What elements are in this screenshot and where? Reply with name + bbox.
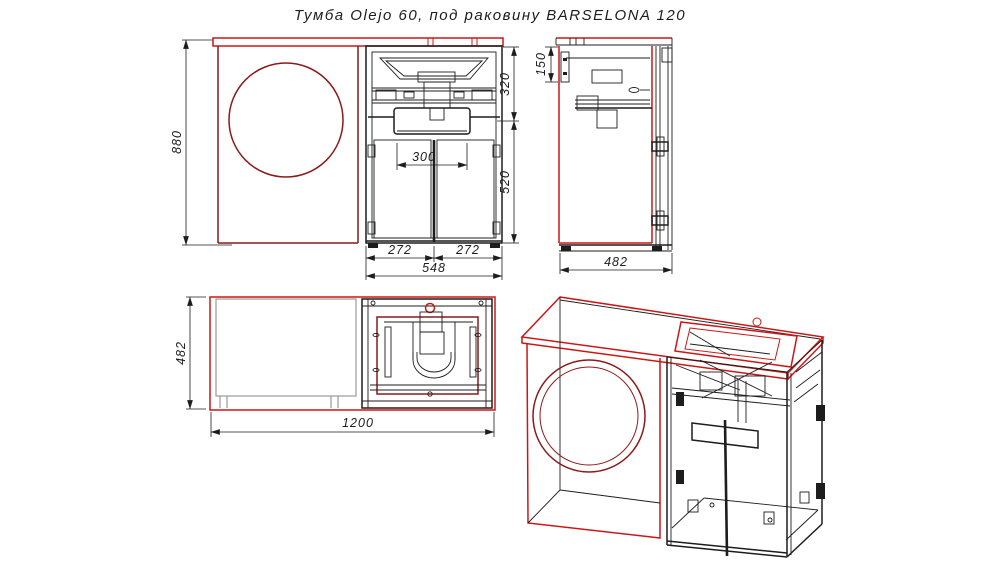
- washer-niche-front: [218, 46, 358, 243]
- tap-hole: [426, 304, 435, 313]
- drawing-sheet: Тумба Olejo 60, под раковину BARSELONA 1…: [0, 0, 1000, 564]
- sink-bowl-side: [592, 70, 622, 83]
- washer-panel-3d: [527, 297, 660, 538]
- drawing-title: Тумба Olejo 60, под раковину BARSELONA 1…: [294, 7, 686, 24]
- dim-label-520: 520: [498, 170, 512, 194]
- right-door: [437, 140, 494, 238]
- dim-label-300: 300: [412, 150, 436, 164]
- tap-hole-3d: [753, 318, 761, 326]
- washer-door-circle-3d: [533, 360, 645, 472]
- drawer-front: [394, 108, 470, 134]
- dim-bottom-row: 272 272 548: [366, 243, 502, 280]
- countertop-plan: [210, 297, 495, 410]
- front-elevation-view: 880: [170, 38, 519, 280]
- dim-plan-depth: 482: [174, 297, 206, 409]
- dim-total-height: 880: [170, 40, 232, 245]
- countertop-3d: [522, 297, 823, 379]
- countertop-side: [556, 38, 672, 45]
- side-internals: [566, 58, 652, 128]
- cabinet-front: [366, 46, 502, 248]
- dim-siphon-clearance: 300: [397, 143, 467, 170]
- siphon-side: [597, 110, 617, 128]
- dim-side-depth: 482: [560, 253, 672, 274]
- hinge-column: [652, 45, 672, 250]
- dim-label-272-right: 272: [455, 243, 480, 257]
- door-gap-3d: [725, 420, 727, 556]
- washer-plan: [216, 299, 356, 408]
- dim-label-272-left: 272: [387, 243, 412, 257]
- dim-label-320: 320: [498, 72, 512, 96]
- dim-apron: 150: [534, 47, 569, 82]
- countertop-front: [213, 38, 503, 46]
- siphon-front: [424, 82, 450, 108]
- side-bottom: [559, 245, 672, 251]
- sink-outline-plan: [377, 317, 478, 394]
- dim-label-150: 150: [534, 52, 548, 76]
- dim-total-width: 1200: [211, 412, 494, 437]
- dim-label-482-plan: 482: [174, 341, 188, 365]
- perspective-view: [522, 297, 825, 557]
- siphon-plan: [420, 332, 444, 354]
- technical-drawing: Тумба Olejo 60, под раковину BARSELONA 1…: [0, 0, 1000, 564]
- dim-label-482-side: 482: [604, 255, 628, 269]
- side-view: 150: [534, 38, 672, 274]
- dim-label-1200: 1200: [342, 416, 374, 430]
- dim-label-548: 548: [422, 261, 446, 275]
- cabinet-3d: [667, 340, 825, 557]
- side-panel: [559, 46, 652, 243]
- dim-label-880: 880: [170, 130, 184, 154]
- washer-door-circle: [229, 63, 343, 177]
- cabinet-plan: [362, 299, 492, 408]
- plan-view: 482 1200: [174, 297, 495, 437]
